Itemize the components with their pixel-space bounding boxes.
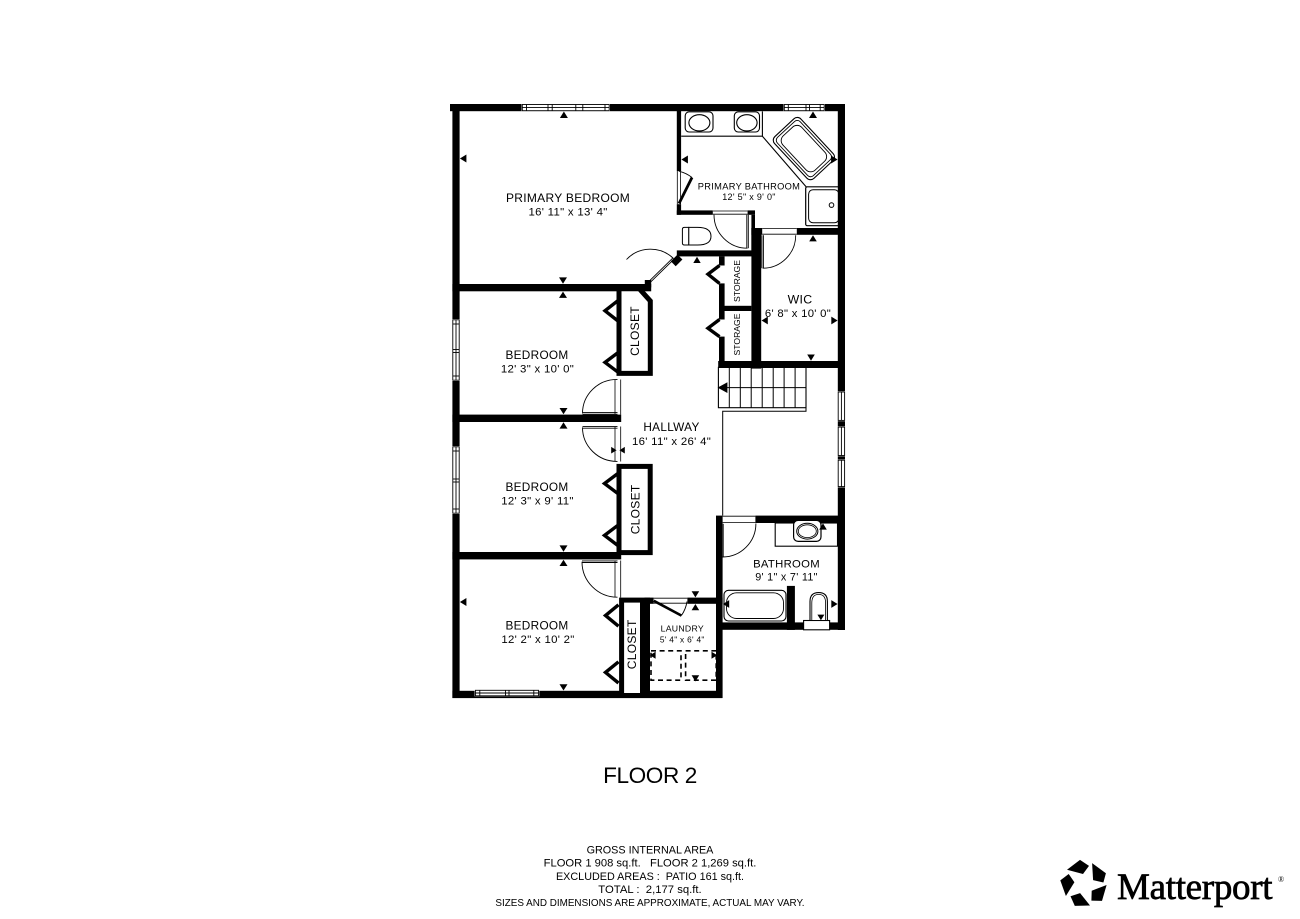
svg-text:12' 3" x 10' 0": 12' 3" x 10' 0" xyxy=(501,363,574,375)
svg-text:BATHROOM: BATHROOM xyxy=(753,558,820,570)
svg-text:9' 1" x 7' 11": 9' 1" x 7' 11" xyxy=(755,572,818,584)
svg-text:WIC: WIC xyxy=(788,292,813,306)
svg-text:FLOOR 2: FLOOR 2 xyxy=(603,763,697,788)
svg-text:HALLWAY: HALLWAY xyxy=(643,420,699,434)
svg-text:16' 11" x 13' 4": 16' 11" x 13' 4" xyxy=(528,207,607,219)
svg-text:LAUNDRY: LAUNDRY xyxy=(661,623,704,633)
svg-text:CLOSET: CLOSET xyxy=(628,306,642,356)
svg-text:5' 4" x 6' 4": 5' 4" x 6' 4" xyxy=(660,634,705,644)
svg-text:12' 3" x 9' 11": 12' 3" x 9' 11" xyxy=(501,496,573,508)
svg-text:16' 11" x 26' 4": 16' 11" x 26' 4" xyxy=(632,436,711,448)
svg-text:GROSS INTERNAL AREA: GROSS INTERNAL AREA xyxy=(587,844,715,856)
svg-text:STORAGE: STORAGE xyxy=(732,313,742,355)
svg-text:STORAGE: STORAGE xyxy=(732,260,742,302)
svg-text:6' 8" x 10' 0": 6' 8" x 10' 0" xyxy=(765,308,831,320)
svg-text:CLOSET: CLOSET xyxy=(625,619,639,669)
svg-text:Matterport: Matterport xyxy=(1117,867,1273,908)
svg-text:SIZES AND DIMENSIONS ARE APPRO: SIZES AND DIMENSIONS ARE APPROXIMATE, AC… xyxy=(495,898,804,909)
svg-text:BEDROOM: BEDROOM xyxy=(505,480,568,494)
svg-text:TOTAL : 2,177 sq.ft.: TOTAL : 2,177 sq.ft. xyxy=(598,884,701,896)
svg-text:PRIMARY BATHROOM: PRIMARY BATHROOM xyxy=(698,181,800,191)
svg-text:EXCLUDED AREAS : PATIO 161 sq: EXCLUDED AREAS : PATIO 161 sq.ft. xyxy=(556,871,744,883)
svg-text:FLOOR 1 908 sq.ft. FLOOR 2 1: FLOOR 1 908 sq.ft. FLOOR 2 1,269 sq.ft. xyxy=(544,858,757,870)
svg-text:BEDROOM: BEDROOM xyxy=(505,619,568,633)
svg-text:12' 2" x 10' 2": 12' 2" x 10' 2" xyxy=(501,634,574,646)
svg-text:BEDROOM: BEDROOM xyxy=(505,348,568,362)
svg-text:CLOSET: CLOSET xyxy=(629,484,643,534)
svg-text:®: ® xyxy=(1278,875,1284,884)
svg-text:PRIMARY BEDROOM: PRIMARY BEDROOM xyxy=(506,191,630,205)
svg-text:12' 5" x 9' 0": 12' 5" x 9' 0" xyxy=(722,192,776,202)
